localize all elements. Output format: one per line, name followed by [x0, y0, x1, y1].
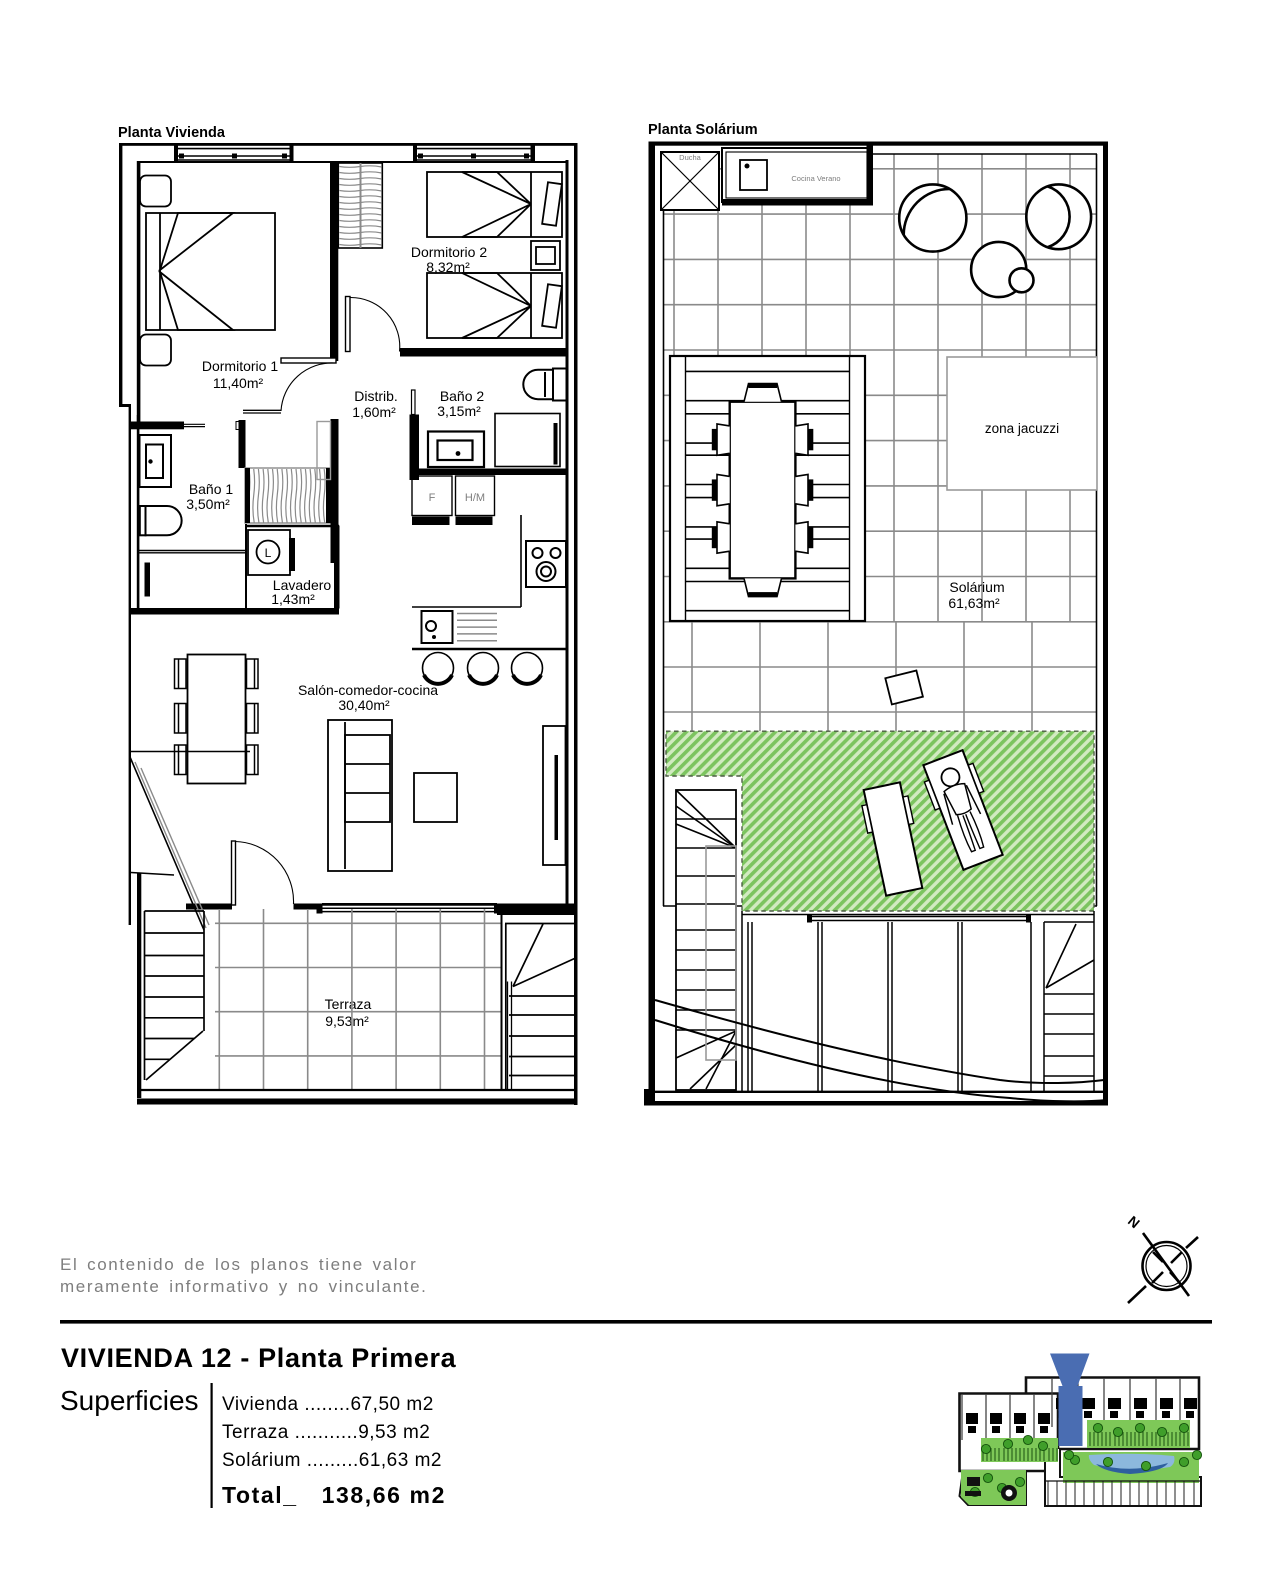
- svg-text:H/M: H/M: [465, 492, 485, 504]
- svg-text:Superficies: Superficies: [60, 1385, 199, 1416]
- svg-text:zona jacuzzi: zona jacuzzi: [985, 421, 1059, 436]
- svg-text:Ducha: Ducha: [679, 153, 702, 162]
- svg-text:Baño 1: Baño 1: [189, 481, 234, 497]
- svg-text:Dormitorio 1: Dormitorio 1: [202, 358, 278, 374]
- svg-text:Solárium: Solárium: [949, 579, 1004, 595]
- svg-text:Planta Solárium: Planta Solárium: [648, 122, 758, 138]
- svg-text:Solárium .........61,63 m2: Solárium .........61,63 m2: [222, 1450, 442, 1471]
- svg-text:F: F: [429, 492, 436, 504]
- svg-text:11,40m²: 11,40m²: [213, 375, 264, 391]
- svg-text:1,60m²: 1,60m²: [352, 404, 396, 420]
- svg-text:Planta Vivienda: Planta Vivienda: [118, 125, 226, 141]
- svg-text:Vivienda ........67,50 m2: Vivienda ........67,50 m2: [222, 1394, 434, 1415]
- svg-text:30,40m²: 30,40m²: [338, 697, 390, 713]
- svg-text:3,50m²: 3,50m²: [186, 496, 230, 512]
- svg-text:Terraza ...........9,53 m2: Terraza ...........9,53 m2: [222, 1422, 430, 1443]
- svg-text:Baño 2: Baño 2: [440, 388, 485, 404]
- svg-text:Cocina Verano: Cocina Verano: [791, 174, 840, 183]
- svg-text:El contenido de los planos tie: El contenido de los planos tiene valor: [60, 1255, 417, 1274]
- svg-text:61,63m²: 61,63m²: [948, 595, 1000, 611]
- svg-text:meramente informativo y no vin: meramente informativo y no vinculante.: [60, 1277, 428, 1296]
- svg-text:9,53m²: 9,53m²: [325, 1013, 369, 1029]
- svg-text:3,15m²: 3,15m²: [437, 403, 481, 419]
- svg-text:Total_ 138,66 m2: Total_ 138,66 m2: [222, 1482, 446, 1508]
- svg-text:Terraza: Terraza: [325, 996, 372, 1012]
- svg-text:VIVIENDA 12 - Planta Primera: VIVIENDA 12 - Planta Primera: [61, 1343, 457, 1373]
- svg-text:Distrib.: Distrib.: [354, 388, 398, 404]
- svg-text:1,43m²: 1,43m²: [271, 591, 315, 607]
- svg-text:Salón-comedor-cocina: Salón-comedor-cocina: [298, 682, 438, 698]
- svg-text:Dormitorio 2: Dormitorio 2: [411, 244, 487, 260]
- svg-text:L: L: [265, 546, 272, 560]
